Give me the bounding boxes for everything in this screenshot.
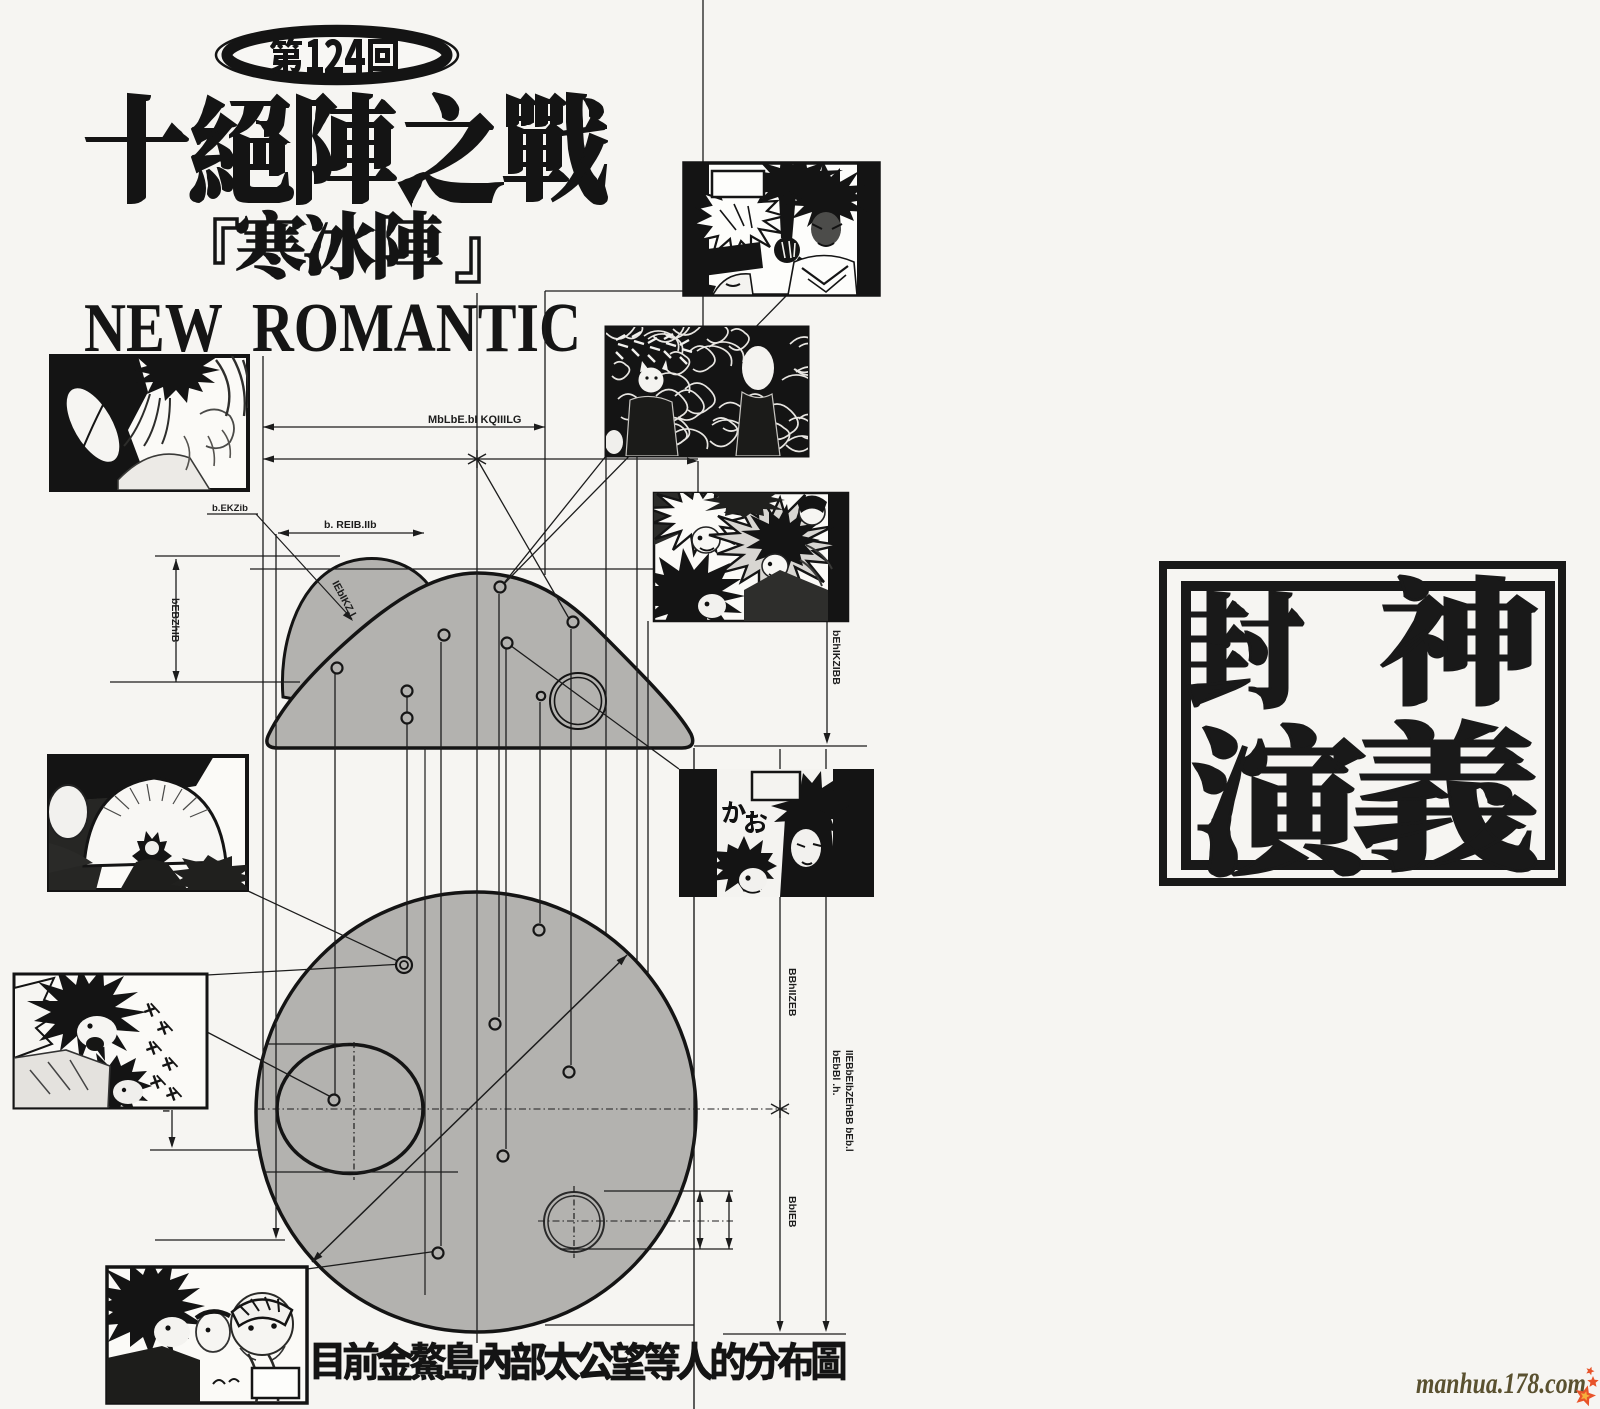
svg-text:b.EKZib: b.EKZib <box>212 503 248 514</box>
svg-text:BBhIIZEB: BBhIIZEB <box>786 968 798 1017</box>
svg-text:MbLbE.bI KQIIILG: MbLbE.bI KQIIILG <box>428 414 522 426</box>
svg-text:manhua.178.com: manhua.178.com <box>1416 1367 1586 1400</box>
svg-text:IIEBbEIbZEhBB bEb.l: IIEBbEIbZEhBB bEb.l <box>843 1050 854 1152</box>
svg-text:b. REIB.IIb: b. REIB.IIb <box>324 519 377 531</box>
svg-text:bEhIKZIBB: bEhIKZIBB <box>830 630 842 685</box>
svg-text:bEbBl .h.: bEbBl .h. <box>830 1050 842 1096</box>
svg-text:BbIEB: BbIEB <box>786 1196 798 1228</box>
svg-text:bEBZhIB: bEBZhIB <box>169 598 181 643</box>
